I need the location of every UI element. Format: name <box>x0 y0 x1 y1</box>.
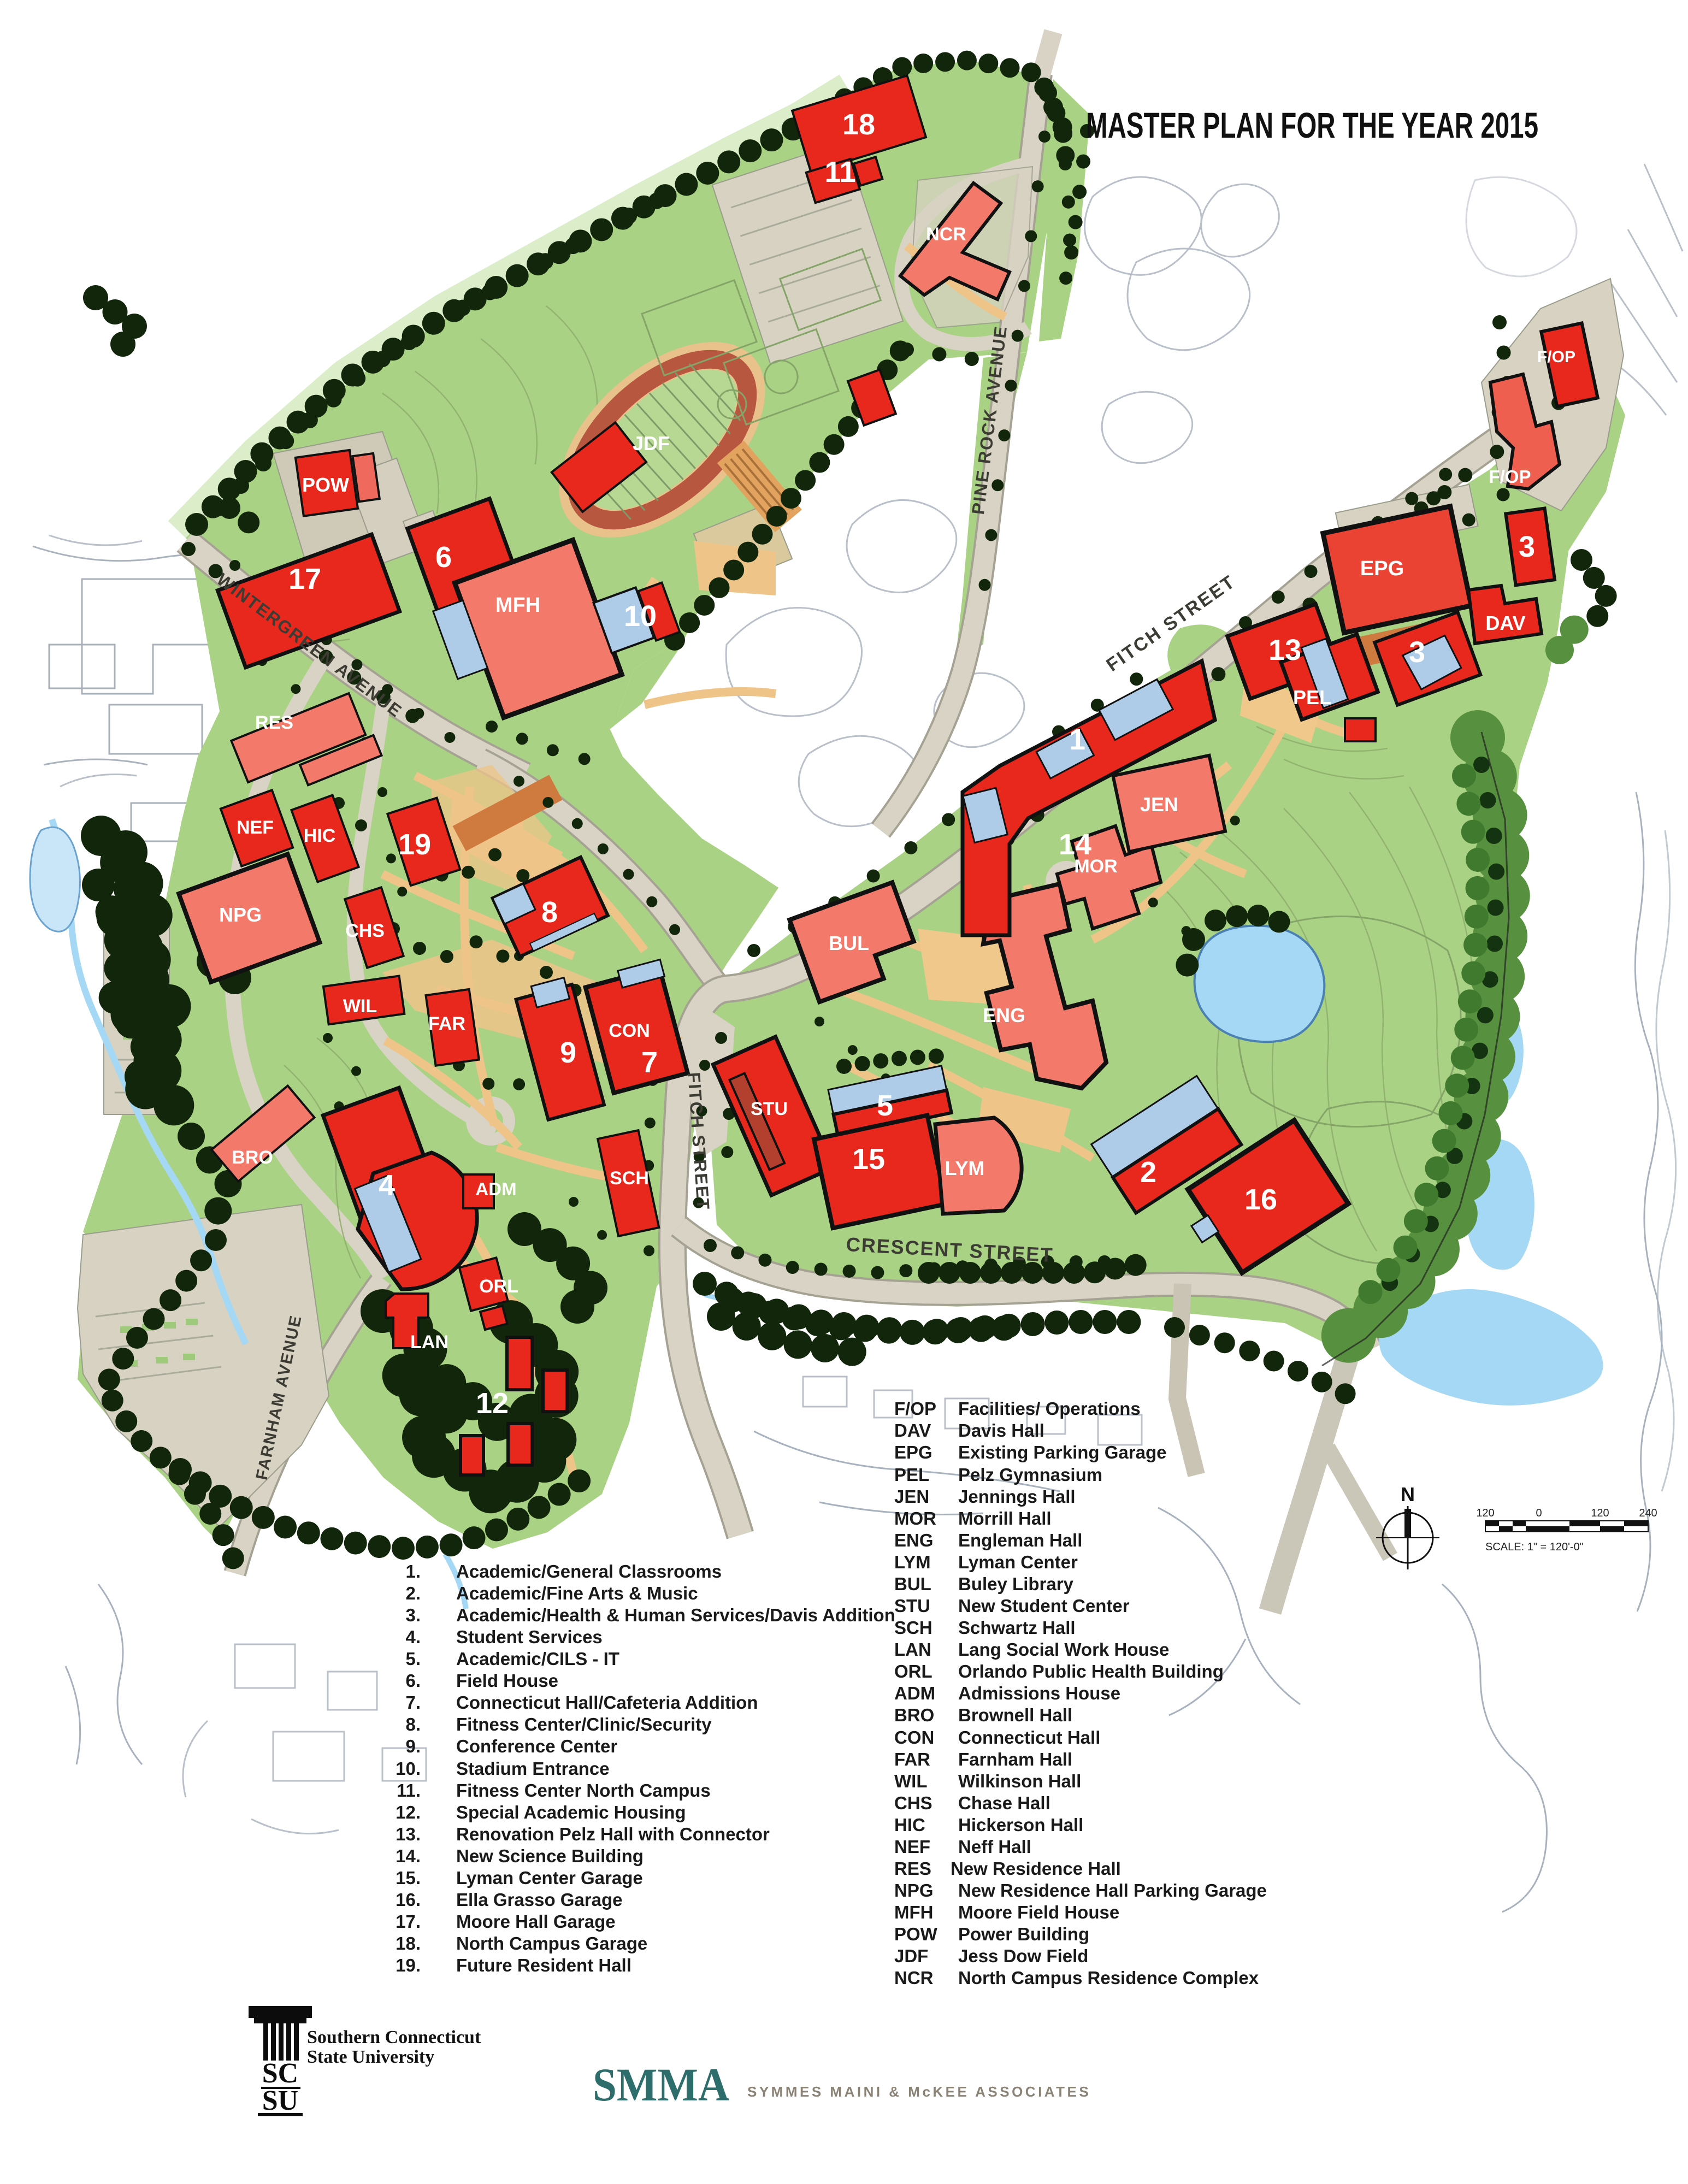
svg-text:7.: 7. <box>405 1692 421 1713</box>
svg-text:3: 3 <box>1519 530 1535 563</box>
svg-text:Lang Social Work House: Lang Social Work House <box>958 1639 1169 1660</box>
svg-text:1.: 1. <box>405 1561 421 1581</box>
svg-text:Neff Hall: Neff Hall <box>958 1837 1031 1857</box>
svg-text:18.: 18. <box>396 1933 421 1953</box>
svg-text:LYM: LYM <box>945 1157 985 1179</box>
svg-text:NPG: NPG <box>219 904 262 926</box>
svg-text:1: 1 <box>1069 723 1085 756</box>
svg-text:JEN: JEN <box>894 1486 929 1507</box>
svg-text:FAR: FAR <box>894 1749 930 1769</box>
svg-text:Southern Connecticut: Southern Connecticut <box>307 2027 481 2047</box>
svg-text:Existing Parking Garage: Existing Parking Garage <box>958 1442 1166 1462</box>
svg-text:SMMA: SMMA <box>593 2058 729 2111</box>
svg-text:CHS: CHS <box>345 920 385 941</box>
svg-text:16: 16 <box>1244 1183 1277 1216</box>
svg-text:3.: 3. <box>405 1605 421 1625</box>
svg-text:Morrill Hall: Morrill Hall <box>958 1508 1052 1528</box>
svg-text:Fitness Center North Campus: Fitness Center North Campus <box>456 1780 711 1801</box>
svg-text:SCALE: 1" = 120'-0": SCALE: 1" = 120'-0" <box>1485 1541 1584 1553</box>
svg-text:Connecticut Hall: Connecticut Hall <box>958 1727 1100 1748</box>
svg-text:ORL: ORL <box>479 1276 518 1297</box>
svg-text:17: 17 <box>288 563 321 595</box>
svg-text:LAN: LAN <box>894 1639 931 1660</box>
svg-text:BUL: BUL <box>894 1574 931 1594</box>
svg-text:Future Resident Hall: Future Resident Hall <box>456 1955 631 1975</box>
svg-text:Student Services: Student Services <box>456 1627 603 1647</box>
svg-text:STU: STU <box>894 1596 930 1616</box>
svg-text:New Residence Hall: New Residence Hall <box>951 1858 1121 1879</box>
svg-text:BRO: BRO <box>894 1705 934 1725</box>
svg-text:8.: 8. <box>405 1714 421 1734</box>
svg-text:Academic/CILS - IT: Academic/CILS - IT <box>456 1649 619 1669</box>
svg-text:SC: SC <box>262 2058 298 2089</box>
svg-text:16.: 16. <box>396 1890 421 1910</box>
svg-text:CON: CON <box>894 1727 934 1748</box>
svg-text:PEL: PEL <box>894 1465 929 1485</box>
svg-text:Lyman Center: Lyman Center <box>958 1552 1078 1572</box>
svg-text:Power Building: Power Building <box>958 1924 1089 1944</box>
svg-text:Davis Hall: Davis Hall <box>958 1420 1044 1441</box>
svg-text:6.: 6. <box>405 1671 421 1691</box>
svg-text:18: 18 <box>842 108 875 141</box>
svg-text:3: 3 <box>1409 636 1425 669</box>
svg-text:ENG: ENG <box>983 1004 1025 1026</box>
svg-text:Chase Hall: Chase Hall <box>958 1793 1050 1813</box>
svg-text:Renovation Pelz Hall with Conn: Renovation Pelz Hall with Connector <box>456 1824 770 1844</box>
svg-text:Farnham Hall: Farnham Hall <box>958 1749 1072 1769</box>
svg-text:FAR: FAR <box>428 1013 465 1034</box>
svg-text:RES: RES <box>255 712 293 733</box>
svg-text:15: 15 <box>852 1143 885 1176</box>
svg-text:SU: SU <box>262 2085 298 2116</box>
svg-text:MOR: MOR <box>1074 856 1117 877</box>
svg-text:DAV: DAV <box>1485 612 1525 634</box>
svg-text:12.: 12. <box>396 1802 421 1822</box>
svg-text:F/OP: F/OP <box>894 1398 936 1419</box>
svg-text:N: N <box>1401 1483 1415 1506</box>
svg-text:4.: 4. <box>405 1627 421 1647</box>
svg-text:14.: 14. <box>396 1846 421 1866</box>
svg-text:Buley Library: Buley Library <box>958 1574 1074 1594</box>
svg-text:SCH: SCH <box>894 1618 932 1638</box>
svg-text:North Campus Residence Complex: North Campus Residence Complex <box>958 1968 1259 1988</box>
svg-text:Special Academic Housing: Special Academic Housing <box>456 1802 686 1822</box>
svg-text:Facilities/ Operations: Facilities/ Operations <box>958 1398 1141 1419</box>
svg-text:CON: CON <box>609 1020 650 1041</box>
svg-text:ORL: ORL <box>894 1661 932 1681</box>
svg-text:F/OP: F/OP <box>1537 348 1575 366</box>
svg-text:10.: 10. <box>396 1758 421 1779</box>
svg-text:15.: 15. <box>396 1868 421 1888</box>
svg-text:HIC: HIC <box>894 1815 925 1835</box>
svg-text:Wilkinson Hall: Wilkinson Hall <box>958 1771 1081 1791</box>
svg-text:POW: POW <box>302 474 349 496</box>
svg-text:5: 5 <box>877 1089 893 1122</box>
svg-text:Stadium Entrance: Stadium Entrance <box>456 1758 610 1779</box>
svg-text:STU: STU <box>751 1099 788 1119</box>
svg-text:NPG: NPG <box>894 1880 934 1900</box>
svg-text:Academic/General Classrooms: Academic/General Classrooms <box>456 1561 722 1581</box>
svg-text:ADM: ADM <box>894 1683 935 1703</box>
svg-text:North Campus Garage: North Campus Garage <box>456 1933 647 1953</box>
svg-text:5.: 5. <box>405 1649 421 1669</box>
svg-text:4: 4 <box>379 1169 395 1202</box>
svg-text:State University: State University <box>307 2047 434 2067</box>
svg-text:MFH: MFH <box>894 1902 933 1922</box>
svg-text:7: 7 <box>641 1046 658 1079</box>
svg-text:12: 12 <box>476 1387 509 1420</box>
svg-text:120: 120 <box>1476 1507 1494 1519</box>
svg-text:Engleman Hall: Engleman Hall <box>958 1530 1082 1550</box>
svg-text:Academic/Fine Arts & Music: Academic/Fine Arts & Music <box>456 1583 698 1603</box>
svg-text:PEL: PEL <box>1293 686 1331 709</box>
svg-text:Moore Hall Garage: Moore Hall Garage <box>456 1911 616 1932</box>
svg-text:HIC: HIC <box>304 825 336 846</box>
svg-text:SYMMES MAINI & McKEE ASSOCIATE: SYMMES MAINI & McKEE ASSOCIATES <box>747 2083 1091 2100</box>
svg-text:2.: 2. <box>405 1583 421 1603</box>
svg-text:BRO: BRO <box>232 1147 273 1168</box>
svg-text:JDF: JDF <box>894 1946 928 1966</box>
svg-text:BUL: BUL <box>829 932 869 954</box>
svg-text:NCR: NCR <box>894 1968 934 1988</box>
svg-text:POW: POW <box>894 1924 938 1944</box>
svg-text:Connecticut Hall/Cafeteria Add: Connecticut Hall/Cafeteria Addition <box>456 1692 758 1713</box>
svg-text:ADM: ADM <box>475 1179 516 1199</box>
svg-text:8: 8 <box>541 896 558 929</box>
svg-text:13.: 13. <box>396 1824 421 1844</box>
svg-text:DAV: DAV <box>894 1420 931 1441</box>
svg-text:11: 11 <box>824 156 855 188</box>
svg-text:19: 19 <box>398 828 431 861</box>
svg-text:EPG: EPG <box>1360 557 1404 580</box>
svg-text:11.: 11. <box>397 1780 421 1801</box>
svg-text:Hickerson Hall: Hickerson Hall <box>958 1815 1083 1835</box>
svg-text:Brownell Hall: Brownell Hall <box>958 1705 1072 1725</box>
svg-text:10: 10 <box>624 600 657 633</box>
svg-text:Pelz Gymnasium: Pelz Gymnasium <box>958 1465 1102 1485</box>
svg-text:9.: 9. <box>405 1736 421 1756</box>
svg-text:JDF: JDF <box>633 432 670 454</box>
svg-text:JEN: JEN <box>1140 793 1178 816</box>
svg-text:13: 13 <box>1268 634 1301 666</box>
svg-text:Ella Grasso Garage: Ella Grasso Garage <box>456 1890 623 1910</box>
svg-text:Lyman Center Garage: Lyman Center Garage <box>456 1868 643 1888</box>
svg-text:EPG: EPG <box>894 1442 932 1462</box>
svg-text:New Residence Hall Parking Gar: New Residence Hall Parking Garage <box>958 1880 1267 1900</box>
svg-text:Jennings Hall: Jennings Hall <box>958 1486 1076 1507</box>
svg-text:6: 6 <box>435 541 452 574</box>
svg-text:Orlando Public Health Building: Orlando Public Health Building <box>958 1661 1224 1681</box>
svg-text:RES: RES <box>894 1858 931 1879</box>
svg-text:Conference Center: Conference Center <box>456 1736 617 1756</box>
svg-text:120: 120 <box>1591 1507 1609 1519</box>
svg-text:Admissions House: Admissions House <box>958 1683 1120 1703</box>
svg-text:Fitness Center/Clinic/Security: Fitness Center/Clinic/Security <box>456 1714 712 1734</box>
svg-text:0: 0 <box>1536 1507 1542 1519</box>
svg-text:Field House: Field House <box>456 1671 558 1691</box>
svg-text:NEF: NEF <box>894 1837 930 1857</box>
svg-text:240: 240 <box>1639 1507 1657 1519</box>
svg-text:WIL: WIL <box>894 1771 927 1791</box>
svg-text:CHS: CHS <box>894 1793 932 1813</box>
svg-text:New Student Center: New Student Center <box>958 1596 1130 1616</box>
svg-text:New Science Building: New Science Building <box>456 1846 644 1866</box>
svg-text:NEF: NEF <box>237 817 274 838</box>
svg-text:9: 9 <box>560 1036 576 1069</box>
svg-text:SCH: SCH <box>610 1168 649 1189</box>
svg-text:ENG: ENG <box>894 1530 934 1550</box>
svg-text:NCR: NCR <box>926 224 966 245</box>
svg-text:LYM: LYM <box>894 1552 931 1572</box>
svg-text:Academic/Health & Human Servic: Academic/Health & Human Services/Davis A… <box>456 1605 895 1625</box>
svg-text:MASTER PLAN FOR THE YEAR 2015: MASTER PLAN FOR THE YEAR 2015 <box>1086 105 1538 145</box>
svg-text:MFH: MFH <box>495 594 540 617</box>
svg-text:WIL: WIL <box>343 996 377 1017</box>
svg-text:Moore Field House: Moore Field House <box>958 1902 1119 1922</box>
svg-text:MOR: MOR <box>894 1508 936 1528</box>
svg-text:Jess Dow Field: Jess Dow Field <box>958 1946 1088 1966</box>
svg-text:Schwartz Hall: Schwartz Hall <box>958 1618 1076 1638</box>
svg-text:LAN: LAN <box>410 1332 448 1353</box>
svg-text:19.: 19. <box>396 1955 421 1975</box>
svg-text:2: 2 <box>1140 1156 1156 1189</box>
svg-text:17.: 17. <box>396 1911 421 1932</box>
svg-text:F/OP: F/OP <box>1489 467 1531 487</box>
